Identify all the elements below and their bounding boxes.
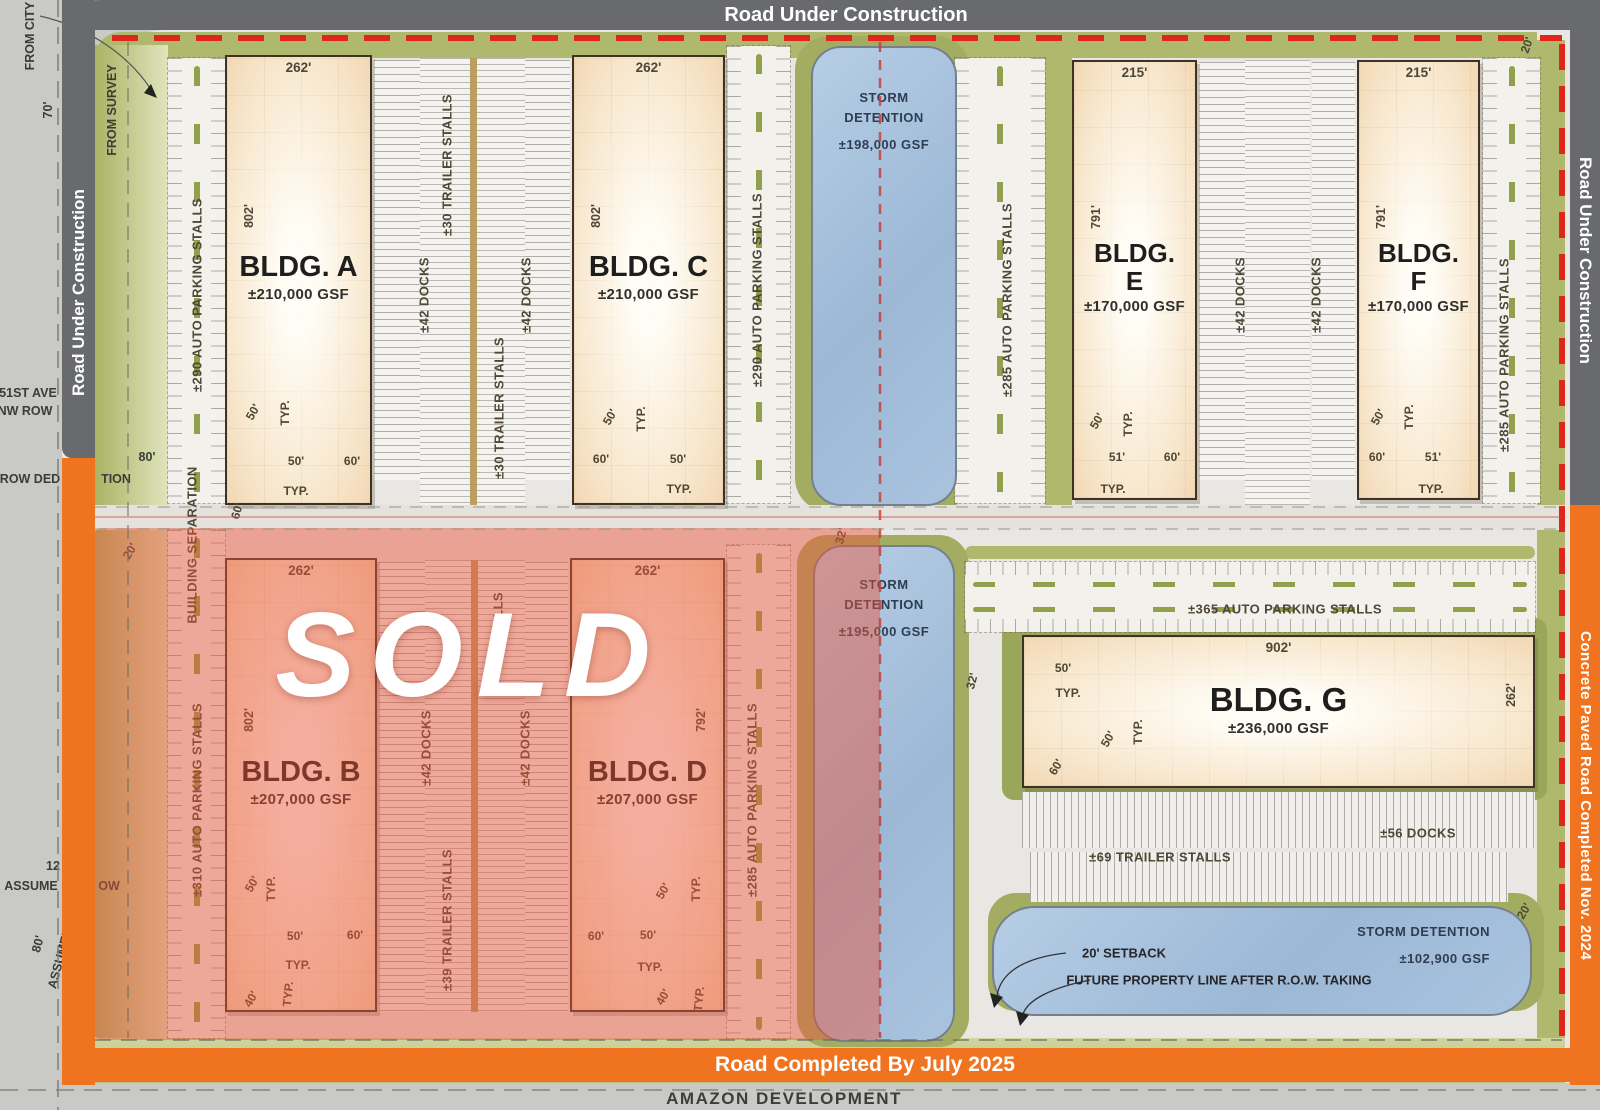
building-side-dimension: 791' [1089, 205, 1103, 229]
building-label: BLDG. G±236,000 GSF [1024, 681, 1533, 737]
building-top-dimension: 902' [1024, 640, 1533, 655]
annotation-label: 60' [1164, 450, 1180, 464]
building-side-dimension: 802' [589, 204, 603, 228]
road-banner-right: Road Under Construction [1570, 0, 1600, 505]
road-banner-right-orange: Concrete Paved Road Completed Nov. 2024 [1570, 505, 1600, 1085]
annotation-label: ±30 TRAILER STALLS [440, 94, 455, 236]
internal-road [95, 505, 1565, 530]
annotation-label: 50' [288, 454, 304, 468]
annotation-label: 60' [593, 452, 609, 466]
building-a: 262'802'BLDG. A±210,000 GSF [225, 55, 372, 505]
annotation-label: OW [98, 879, 120, 893]
annotation-label: ROW DED [0, 472, 60, 486]
amazon-development-label: AMAZON DEVELOPMENT [666, 1089, 902, 1109]
annotation-label: 20' SETBACK [1082, 946, 1166, 961]
annotation-label: TYP. [280, 981, 296, 1007]
annotation-label: ±285 AUTO PARKING STALLS [1000, 203, 1015, 397]
annotation-label: 12 [46, 859, 60, 873]
annotation-label: 60' [347, 928, 363, 942]
trailer-stall-area [1245, 60, 1310, 505]
annotation-label: TYP. [278, 400, 292, 425]
annotation-label: ±30 TRAILER STALLS [492, 337, 507, 479]
annotation-label: 51ST AVE [0, 386, 57, 400]
road-banner-left: Road Under Construction [62, 0, 95, 458]
annotation-label: 51' [1425, 450, 1441, 464]
building-label: BLDG. D±207,000 GSF [572, 757, 723, 809]
annotation-label: BUILDING SEPARATION [185, 466, 200, 623]
annotation-label: TYP. [689, 876, 703, 901]
trailer-stall-area [420, 58, 525, 505]
building-top-dimension: 262' [227, 563, 375, 578]
building-label: BLDG. B±207,000 GSF [227, 757, 375, 809]
building-label: BLDG. A±210,000 GSF [227, 252, 370, 304]
landscape-strip [1045, 42, 1072, 505]
annotation-label: 60' [1369, 450, 1385, 464]
site-plan: AMAZON DEVELOPMENT [0, 0, 1600, 1110]
building-gsf: ±170,000 GSF [1074, 299, 1195, 315]
annotation-label: TYP. [666, 482, 691, 496]
annotation-label: TYP. [1121, 411, 1135, 436]
annotation-label: TYP. [1055, 686, 1080, 700]
building-gsf: ±210,000 GSF [227, 288, 370, 304]
annotation-label: 50' [670, 452, 686, 466]
sold-label: SOLD [275, 586, 664, 724]
annotation-label: 60' [344, 454, 360, 468]
road-banner-right-orange-label: Concrete Paved Road Completed Nov. 2024 [1570, 513, 1600, 1079]
storm-detention-area: STORMDETENTION±195,000 GSF [813, 545, 955, 1042]
annotation-label: TYP. [1100, 482, 1125, 496]
building-f: 215'791'BLDG.F±170,000 GSF [1357, 60, 1480, 500]
annotation-label: TYP. [637, 960, 662, 974]
road-banner-bottom: Road Completed By July 2025 [62, 1048, 1570, 1082]
road-banner-bottom-label: Road Completed By July 2025 [715, 1053, 1015, 1077]
landscape-strip [965, 546, 1535, 559]
annotation-label: ±69 TRAILER STALLS [1089, 850, 1231, 865]
annotation-label: TYP. [285, 958, 310, 972]
dock-apron [1022, 792, 1535, 848]
annotation-label: ±42 DOCKS [519, 257, 534, 333]
annotation-label: TYP. [264, 876, 278, 901]
annotation-label: NW ROW [0, 404, 52, 418]
landscape-strip [1537, 40, 1565, 1043]
annotation-label: TYP. [691, 986, 707, 1012]
building-gsf: ±207,000 GSF [572, 793, 723, 809]
building-g: 902'262'BLDG. G±236,000 GSF [1022, 635, 1535, 788]
annotation-label: ±290 AUTO PARKING STALLS [750, 193, 765, 387]
annotation-label: ±285 AUTO PARKING STALLS [745, 703, 760, 897]
annotation-label: ±290 AUTO PARKING STALLS [190, 198, 205, 392]
annotation-label: TYP. [634, 406, 648, 431]
building-c: 262'802'BLDG. C±210,000 GSF [572, 55, 725, 505]
annotation-label: 60' [588, 929, 604, 943]
road-banner-left-orange [62, 458, 95, 1085]
building-label: BLDG.E±170,000 GSF [1074, 239, 1195, 315]
building-gsf: ±210,000 GSF [574, 288, 723, 304]
parking-area [965, 562, 1535, 632]
annotation-label: TYP. [283, 484, 308, 498]
building-gsf: ±170,000 GSF [1359, 299, 1478, 315]
annotation-label: TYP. [1131, 719, 1145, 744]
building-side-dimension: 802' [242, 204, 256, 228]
road-banner-top: Road Under Construction [62, 0, 1600, 30]
building-top-dimension: 215' [1359, 65, 1478, 80]
aerial-strip-bottom: AMAZON DEVELOPMENT [0, 1083, 1600, 1110]
road-banner-top-label: Road Under Construction [724, 4, 967, 27]
annotation-label: 51' [1109, 450, 1125, 464]
annotation-label: ASSUME [4, 879, 57, 893]
building-side-dimension: 791' [1374, 205, 1388, 229]
annotation-label: ±42 DOCKS [1309, 257, 1324, 333]
building-top-dimension: 262' [574, 60, 723, 75]
annotation-label: TION [101, 472, 131, 486]
building-top-dimension: 262' [227, 60, 370, 75]
annotation-label: ±39 TRAILER STALLS [440, 849, 455, 991]
storm-detention-area: STORMDETENTION±198,000 GSF [811, 46, 957, 506]
storm-detention-area: STORM DETENTION±102,900 GSF [992, 906, 1532, 1016]
annotation-label: TYP. [1402, 404, 1416, 429]
road-banner-left-label: Road Under Construction [62, 128, 95, 458]
annotation-label: 50' [287, 929, 303, 943]
building-top-dimension: 215' [1074, 65, 1195, 80]
annotation-label: FUTURE PROPERTY LINE AFTER R.O.W. TAKING [1066, 973, 1371, 988]
annotation-label: 50' [1055, 661, 1071, 675]
annotation-label: ±42 DOCKS [417, 257, 432, 333]
annotation-label: 50' [640, 928, 656, 942]
parking-area [1483, 58, 1540, 503]
annotation-label: ±42 DOCKS [1233, 257, 1248, 333]
building-side-dimension: 792' [694, 708, 708, 732]
building-label: BLDG. C±210,000 GSF [574, 252, 723, 304]
annotation-label: FROM SURVEY [105, 64, 119, 155]
annotation-label: 80' [139, 450, 156, 464]
annotation-label: ±56 DOCKS [1380, 826, 1456, 841]
building-label: BLDG.F±170,000 GSF [1359, 239, 1478, 315]
annotation-label: ±285 AUTO PARKING STALLS [1497, 258, 1512, 452]
road-banner-right-label: Road Under Construction [1570, 70, 1600, 450]
dock-apron [374, 60, 420, 480]
annotation-label: FROM CITY [23, 2, 37, 71]
building-top-dimension: 262' [572, 563, 723, 578]
annotation-label: 70' [41, 102, 55, 119]
building-gsf: ±236,000 GSF [1024, 721, 1533, 737]
building-side-dimension: 802' [242, 708, 256, 732]
annotation-label: TYP. [1418, 482, 1443, 496]
building-gsf: ±207,000 GSF [227, 793, 375, 809]
annotation-label: ±310 AUTO PARKING STALLS [190, 703, 205, 897]
annotation-label: ±365 AUTO PARKING STALLS [1188, 602, 1382, 617]
